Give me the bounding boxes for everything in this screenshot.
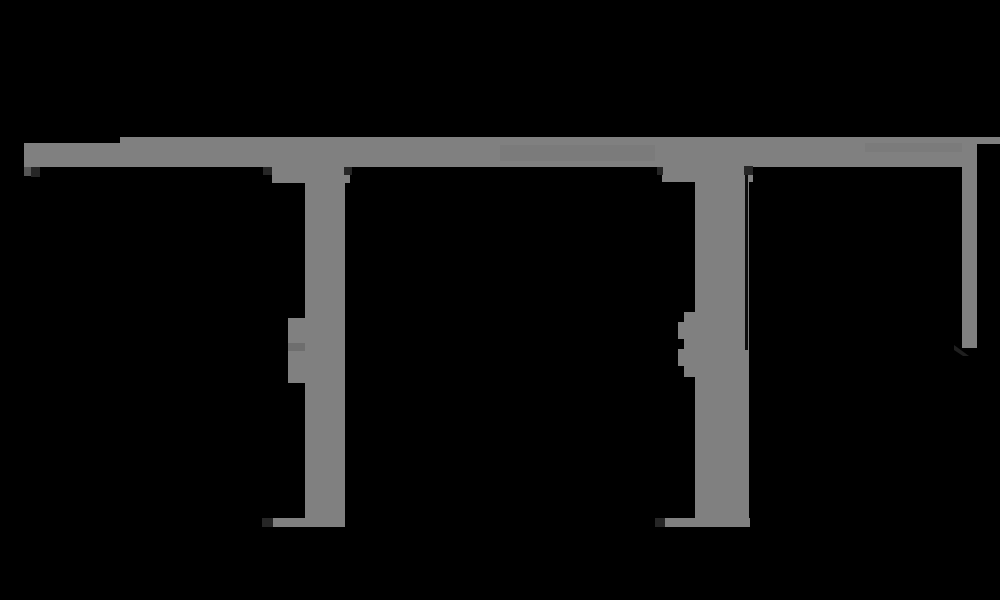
splitter-2-corner-mark-left — [657, 167, 663, 175]
toolbar-label-smudge-right — [865, 143, 962, 152]
splitter-1-head[interactable] — [272, 167, 350, 183]
splitter-2-overlay-line — [745, 172, 748, 350]
splitter-1-stem[interactable] — [305, 183, 345, 518]
cursor-arrow-icon — [954, 342, 969, 354]
page-title-redacted — [48, 72, 490, 108]
content-panel-3 — [750, 167, 962, 527]
content-panel-3-extension — [962, 358, 1000, 527]
splitter-2-corner-mark-right — [744, 166, 753, 175]
splitter-2-foot — [658, 518, 750, 527]
toolbar-segment-left — [24, 143, 120, 167]
panel-corner-glyph-icon — [31, 167, 40, 177]
caption-rule-redacted — [185, 111, 500, 119]
splitter-2-grip-tooth — [678, 349, 684, 366]
content-panel-1 — [24, 167, 305, 527]
splitter-2-foot-mark — [655, 518, 665, 527]
splitter-2-head[interactable] — [662, 167, 753, 182]
screenshot-root — [0, 0, 1000, 600]
vertical-scrollbar-thumb[interactable] — [962, 165, 977, 348]
splitter-1-corner-mark-right — [344, 167, 352, 175]
splitter-1-grip-seam — [288, 343, 305, 351]
content-panel-2 — [345, 167, 695, 527]
panel-corner-glyph-icon — [24, 167, 31, 176]
splitter-1-foot-mark — [262, 518, 273, 527]
toolbar-label-smudge-left — [500, 145, 655, 161]
subtitle-redacted — [500, 95, 997, 118]
splitter-1-foot — [273, 518, 345, 527]
toolbar-segment-tail — [977, 137, 1000, 144]
splitter-2-grip-tooth — [678, 322, 684, 339]
splitter-2-grip-handle[interactable] — [684, 312, 695, 377]
splitter-1-corner-mark-left — [263, 167, 272, 175]
splitter-2-stem[interactable] — [695, 182, 749, 518]
